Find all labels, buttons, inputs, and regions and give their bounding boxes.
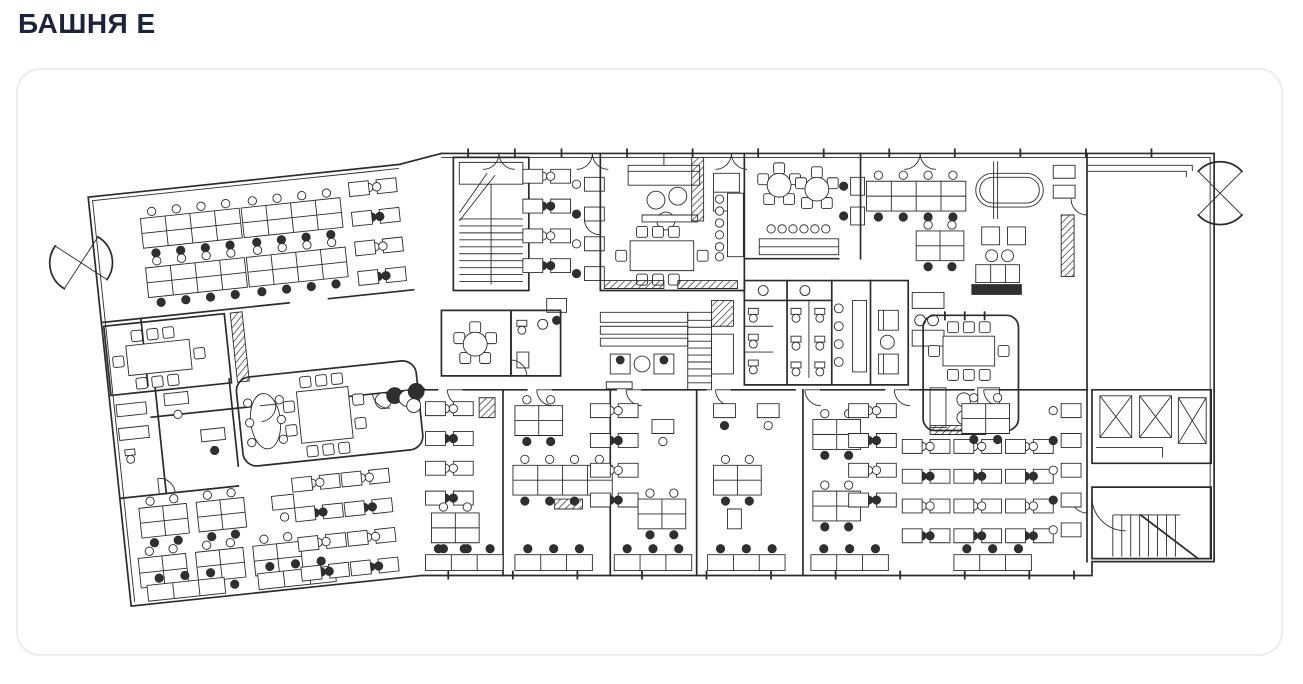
cafe-round-tables: [758, 163, 838, 209]
core-meeting-room: [441, 310, 560, 376]
main-staircase: [453, 157, 528, 290]
revolving-door-west-icon: [46, 235, 116, 291]
wc-block: [712, 281, 944, 385]
left-wing: [41, 164, 443, 611]
phone-room: [878, 310, 898, 374]
left-wing-service-rooms: [115, 388, 230, 498]
desks-top-right: [839, 153, 965, 270]
page: БАШНЯ Е: [0, 0, 1303, 684]
wardrobe-hatch-right: [1061, 215, 1074, 277]
core-desk-columns: [523, 169, 604, 324]
closet-hatch: [712, 300, 734, 326]
right-desk-column: [1049, 404, 1081, 537]
wardrobe-hatch: [230, 312, 249, 382]
floor-plan-card: [16, 68, 1283, 656]
elevator-bank: [1092, 390, 1211, 463]
left-wing-desks-top: [139, 178, 407, 308]
bottom-office: [422, 390, 1087, 576]
floor-plan-drawing: [18, 70, 1281, 654]
entry-doors: [483, 153, 936, 169]
reception-area: [600, 312, 711, 389]
lobby: [1071, 162, 1242, 562]
left-wing-meeting-room: [104, 312, 250, 396]
page-title: БАШНЯ Е: [18, 8, 156, 40]
left-wing-boardroom: [235, 359, 430, 467]
revolving-door-east-icon: [1198, 162, 1242, 225]
lobby-staircase: [1092, 487, 1211, 559]
